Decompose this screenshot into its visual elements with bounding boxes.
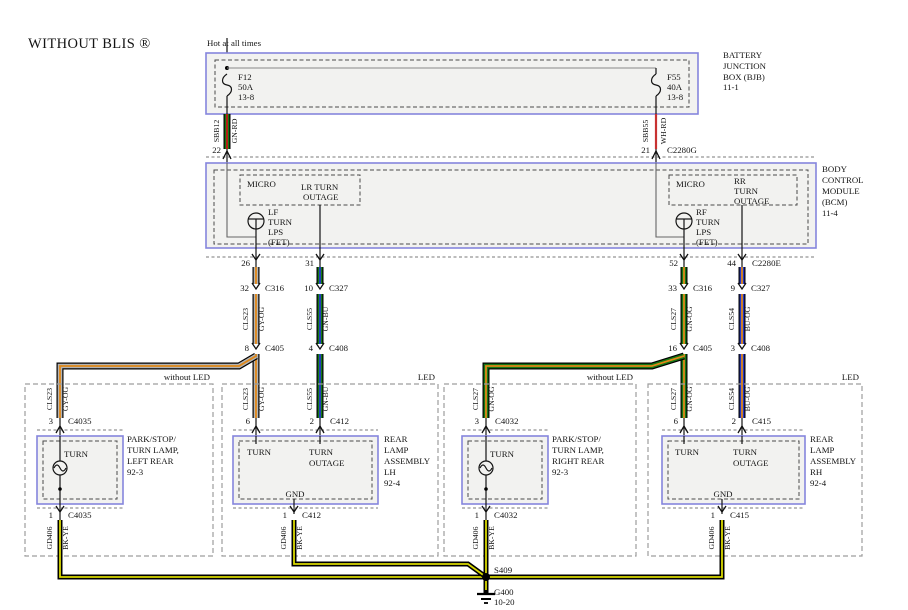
pin-label: 2 <box>732 416 736 426</box>
connector-label: C405 <box>693 343 713 353</box>
variant-label: without LED <box>164 372 210 382</box>
fuse-f55-name: F55 <box>667 72 681 82</box>
svg-text:92-4: 92-4 <box>810 478 827 488</box>
pin-label: 26 <box>241 258 250 268</box>
lamp-lh-name-label: PARK/STOP/ TURN LAMP, LEFT REAR 92-3 <box>127 434 179 477</box>
bjb-name-label: BATTERY JUNCTION BOX (BJB) 11-1 <box>723 50 767 92</box>
pin-label: 22 <box>212 145 221 155</box>
pin-label: 32 <box>240 283 249 293</box>
wire-circuit-label: SBB55 <box>641 120 650 143</box>
wire-circuit-label: CLS27 <box>669 308 678 330</box>
turn-label: TURN <box>64 449 89 459</box>
pin-label: 21 <box>641 145 650 155</box>
assy-rh-name-label: REAR LAMP ASSEMBLY RH 92-4 <box>810 434 857 488</box>
fuse-f55-ref: 13-8 <box>667 92 684 102</box>
wire-circuit-label: GD406 <box>279 526 288 549</box>
turn-label: TURN <box>675 447 700 457</box>
micro-label: MICRO <box>676 179 705 189</box>
connector-label: C408 <box>329 343 349 353</box>
wire-cls23-column: CLS23 GY-OG CLS23 GY-OG CLS23 GY-OG <box>45 267 266 418</box>
variant-label: LED <box>842 372 859 382</box>
lamp-top-pin-rows: 3 C4035 6 2 C412 3 C4032 6 2 C415 <box>37 416 805 436</box>
pin-label: 6 <box>674 416 679 426</box>
wire-circuit-label: GD406 <box>45 526 54 549</box>
wire-circuit-label: CLS55 <box>305 388 314 410</box>
svg-text:(BCM): (BCM) <box>822 197 847 207</box>
wire-color-label: BK-YE <box>295 526 304 550</box>
connector-label: C316 <box>265 283 285 293</box>
connector-label: C412 <box>302 510 321 520</box>
variant-label: LED <box>418 372 435 382</box>
svg-text:ASSEMBLY: ASSEMBLY <box>384 456 431 466</box>
bjb-box <box>206 53 698 114</box>
turn-label: TURN <box>247 447 272 457</box>
svg-text:LEFT REAR: LEFT REAR <box>127 456 174 466</box>
connector-label: C408 <box>751 343 771 353</box>
pin-label: 9 <box>731 283 736 293</box>
wire-color-label: GN-OG <box>685 306 694 331</box>
connector-row-c316-c327: 32 C316 10 C327 33 C316 9 C327 <box>240 283 770 293</box>
connector-label: C4035 <box>68 510 92 520</box>
svg-text:MODULE: MODULE <box>822 186 860 196</box>
bcm-bottom-connector-row: 26 31 52 44 C2280E <box>206 248 816 268</box>
svg-text:RF: RF <box>696 207 707 217</box>
bcm-name-label: BODY CONTROL MODULE (BCM) 11-4 <box>822 164 864 218</box>
svg-text:BODY: BODY <box>822 164 848 174</box>
micro-label: MICRO <box>247 179 276 189</box>
svg-text:OUTAGE: OUTAGE <box>303 192 338 202</box>
svg-text:11-4: 11-4 <box>822 208 838 218</box>
wire-color-label: GN-OG <box>487 386 496 411</box>
connector-label: C316 <box>693 283 713 293</box>
connector-label: C4032 <box>494 510 517 520</box>
svg-text:PARK/STOP/: PARK/STOP/ <box>552 434 601 444</box>
pin-label: 6 <box>246 416 251 426</box>
pin-label: 1 <box>49 510 53 520</box>
wire-color-label: WH-RD <box>659 117 668 144</box>
pin-label: 3 <box>475 416 480 426</box>
svg-text:BOX (BJB): BOX (BJB) <box>723 72 765 82</box>
lamp-bottom-pin-rows: 1 C4035 1 C412 1 C4032 1 C415 <box>37 504 805 521</box>
turn-outage-label: TURN <box>733 447 758 457</box>
pin-label: 52 <box>669 258 678 268</box>
svg-text:PARK/STOP/: PARK/STOP/ <box>127 434 176 444</box>
wire-color-label: BK-YE <box>61 526 70 550</box>
gnd-label: GND <box>285 489 304 499</box>
wire-color-label: BK-YE <box>723 526 732 550</box>
wire-cls27-column: CLS27 GN-OG CLS27 GN-OG CLS27 GN-OG <box>471 267 694 418</box>
pin-label: 1 <box>283 510 287 520</box>
svg-text:REAR: REAR <box>810 434 834 444</box>
wire-color-label: GN-BU <box>321 306 330 331</box>
svg-text:92-3: 92-3 <box>127 467 144 477</box>
svg-text:11-1: 11-1 <box>723 82 739 92</box>
turn-outage-label: TURN <box>309 447 334 457</box>
wire-circuit-label: CLS27 <box>471 388 480 410</box>
pin-label: 33 <box>668 283 677 293</box>
wire-circuit-label: GD406 <box>707 526 716 549</box>
wire-color-label: BK-YE <box>487 526 496 550</box>
ground-name-label: G400 <box>494 587 514 597</box>
lamp-rh-park-stop-turn: TURN PARK/STOP/ TURN LAMP, RIGHT REAR 92… <box>462 434 605 504</box>
svg-text:LH: LH <box>384 467 396 477</box>
wire-color-label: GN-RD <box>230 118 239 143</box>
svg-text:RH: RH <box>810 467 823 477</box>
pin-label: 31 <box>305 258 314 268</box>
wire-circuit-label: CLS54 <box>727 388 736 410</box>
svg-text:LAMP: LAMP <box>810 445 835 455</box>
pin-label: 3 <box>731 343 736 353</box>
fuse-f55-rating: 40A <box>667 82 683 92</box>
wire-circuit-label: SBB12 <box>212 120 221 143</box>
svg-text:JUNCTION: JUNCTION <box>723 61 767 71</box>
body-control-module: MICRO LR TURN OUTAGE LF TURN LPS (FET) M… <box>206 163 864 248</box>
lr-turn-outage-label: LR TURN <box>301 182 339 192</box>
turn-label: TURN <box>490 449 515 459</box>
wire-color-label: GN-OG <box>685 386 694 411</box>
wire-color-label: GY-OG <box>257 307 266 332</box>
wire-color-label: BU-OG <box>743 386 752 411</box>
wiring-diagram: WITHOUT BLIS ® Hot at all times F12 50A … <box>0 0 908 610</box>
svg-text:BATTERY: BATTERY <box>723 50 763 60</box>
svg-text:(FET): (FET) <box>696 237 718 247</box>
assy-lh-name-label: REAR LAMP ASSEMBLY LH 92-4 <box>384 434 431 488</box>
svg-text:92-3: 92-3 <box>552 467 569 477</box>
svg-text:OUTAGE: OUTAGE <box>734 196 769 206</box>
svg-text:OUTAGE: OUTAGE <box>733 458 768 468</box>
ground-ref-label: 10-20 <box>494 597 515 607</box>
svg-text:TURN: TURN <box>734 186 759 196</box>
page-title: WITHOUT BLIS ® <box>28 36 151 52</box>
connector-label: C415 <box>730 510 750 520</box>
ground-bus-gd406: GD406 BK-YE GD406 BK-YE GD406 BK-YE GD40… <box>45 520 732 607</box>
wire-circuit-label: CLS23 <box>45 388 54 410</box>
connector-label: C405 <box>265 343 285 353</box>
svg-text:LF: LF <box>268 207 278 217</box>
rr-turn-outage-label: RR <box>734 176 746 186</box>
svg-text:ASSEMBLY: ASSEMBLY <box>810 456 857 466</box>
connector-label: C412 <box>330 416 349 426</box>
wire-circuit-label: GD406 <box>471 526 480 549</box>
wire-circuit-label: CLS23 <box>241 388 250 410</box>
connector-row-c405-c408: 8 C405 4 C408 16 C405 3 C408 <box>245 343 771 353</box>
gnd-label: GND <box>713 489 732 499</box>
lamp-lh-park-stop-turn: TURN PARK/STOP/ TURN LAMP, LEFT REAR 92-… <box>37 434 179 504</box>
wire-color-label: BU-OG <box>743 306 752 331</box>
pin-label: 1 <box>711 510 715 520</box>
pin-label: 10 <box>304 283 313 293</box>
pin-label: 1 <box>475 510 479 520</box>
connector-label: C327 <box>751 283 771 293</box>
wire-sbb55: SBB55 WH-RD <box>641 114 668 149</box>
wire-circuit-label: CLS54 <box>727 308 736 330</box>
svg-text:(FET): (FET) <box>268 237 290 247</box>
connector-label: C327 <box>329 283 349 293</box>
svg-text:92-4: 92-4 <box>384 478 401 488</box>
ground-g400-icon <box>477 594 495 603</box>
svg-text:OUTAGE: OUTAGE <box>309 458 344 468</box>
svg-text:TURN LAMP,: TURN LAMP, <box>127 445 179 455</box>
wire-color-label: GY-OG <box>61 387 70 412</box>
connector-label: C2280E <box>752 258 781 268</box>
connector-label: C4032 <box>495 416 518 426</box>
pin-label: 3 <box>49 416 54 426</box>
svg-text:RIGHT REAR: RIGHT REAR <box>552 456 605 466</box>
rear-lamp-assembly-rh: TURN TURN OUTAGE GND REAR LAMP ASSEMBLY … <box>662 434 857 514</box>
splice-label: S409 <box>494 565 513 575</box>
svg-text:TURN LAMP,: TURN LAMP, <box>552 445 604 455</box>
connector-label: C4035 <box>68 416 92 426</box>
pin-label: 8 <box>245 343 250 353</box>
wire-sbb12: SBB12 GN-RD <box>212 114 239 149</box>
rear-lamp-assembly-lh: TURN TURN OUTAGE GND REAR LAMP ASSEMBLY … <box>233 434 431 514</box>
wire-color-label: GY-OG <box>257 387 266 412</box>
wire-circuit-label: CLS27 <box>669 388 678 410</box>
svg-text:TURN: TURN <box>696 217 721 227</box>
wire-circuit-label: CLS23 <box>241 308 250 330</box>
svg-text:LPS: LPS <box>696 227 711 237</box>
battery-junction-box: Hot at all times F12 50A 13-8 F55 40A 13… <box>206 38 767 114</box>
svg-text:LAMP: LAMP <box>384 445 409 455</box>
variant-label: without LED <box>587 372 633 382</box>
svg-text:TURN: TURN <box>268 217 293 227</box>
connector-label: C2280G <box>667 145 697 155</box>
lamp-rh-name-label: PARK/STOP/ TURN LAMP, RIGHT REAR 92-3 <box>552 434 605 477</box>
wire-color-label: GN-BU <box>321 386 330 411</box>
fuse-f12-rating: 50A <box>238 82 254 92</box>
svg-text:CONTROL: CONTROL <box>822 175 864 185</box>
svg-text:REAR: REAR <box>384 434 408 444</box>
fuse-f12-ref: 13-8 <box>238 92 255 102</box>
fuse-f12-name: F12 <box>238 72 252 82</box>
wiring-diagram-page: WITHOUT BLIS ® Hot at all times F12 50A … <box>0 0 908 610</box>
pin-label: 44 <box>727 258 736 268</box>
hot-at-all-times-label: Hot at all times <box>207 38 262 48</box>
svg-text:LPS: LPS <box>268 227 283 237</box>
pin-label: 2 <box>310 416 314 426</box>
bcm-top-connector-row: 22 21 C2280G <box>206 145 816 163</box>
splice-s409-dot <box>482 573 490 581</box>
connector-label: C415 <box>752 416 772 426</box>
wire-circuit-label: CLS55 <box>305 308 314 330</box>
pin-label: 16 <box>668 343 677 353</box>
pin-label: 4 <box>309 343 314 353</box>
